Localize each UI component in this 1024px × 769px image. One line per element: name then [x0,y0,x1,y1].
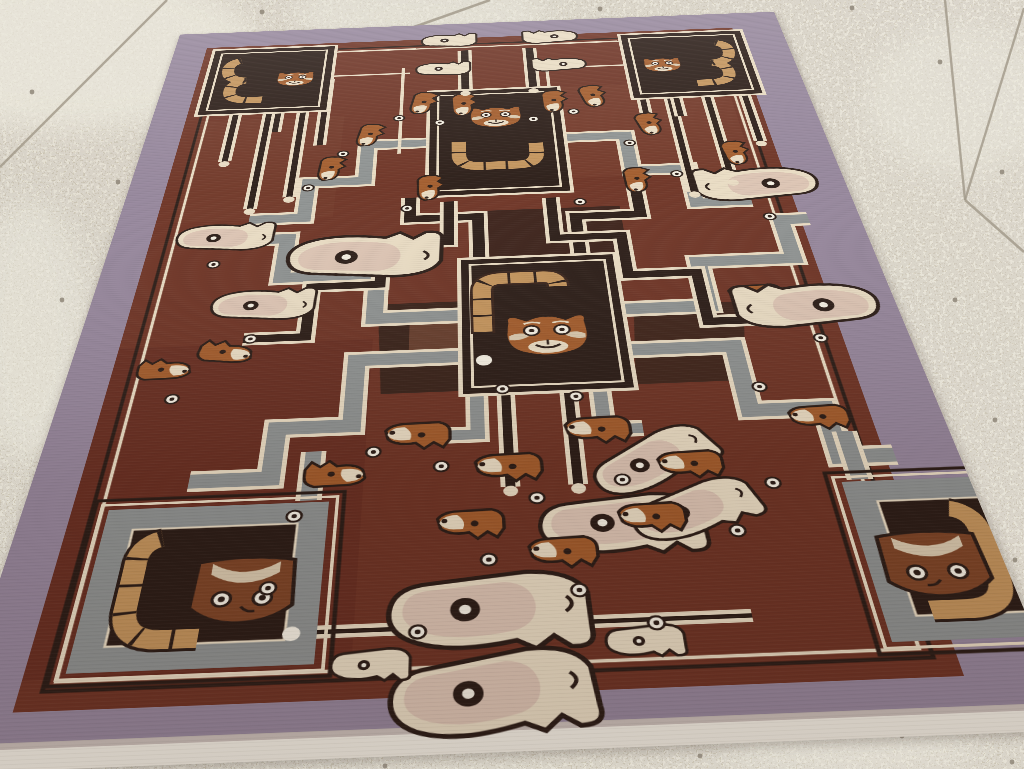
floor-pebble [1013,558,1018,563]
floor-pebble [383,764,388,769]
floor-pebble [598,7,603,12]
floor-pebble [260,10,265,15]
floor-pebble [1010,760,1015,765]
floor-pebble [698,754,703,759]
floor-pebble [993,418,998,423]
floor-pebble [1000,170,1005,175]
photograph-rug-on-floor [0,0,1024,769]
floor-pebble [938,60,943,65]
floor-pebble [953,298,958,303]
floor-pebble [850,6,855,11]
floor-pebble [60,298,65,303]
floor-pebble [116,180,121,185]
floor-pebble [30,90,35,95]
